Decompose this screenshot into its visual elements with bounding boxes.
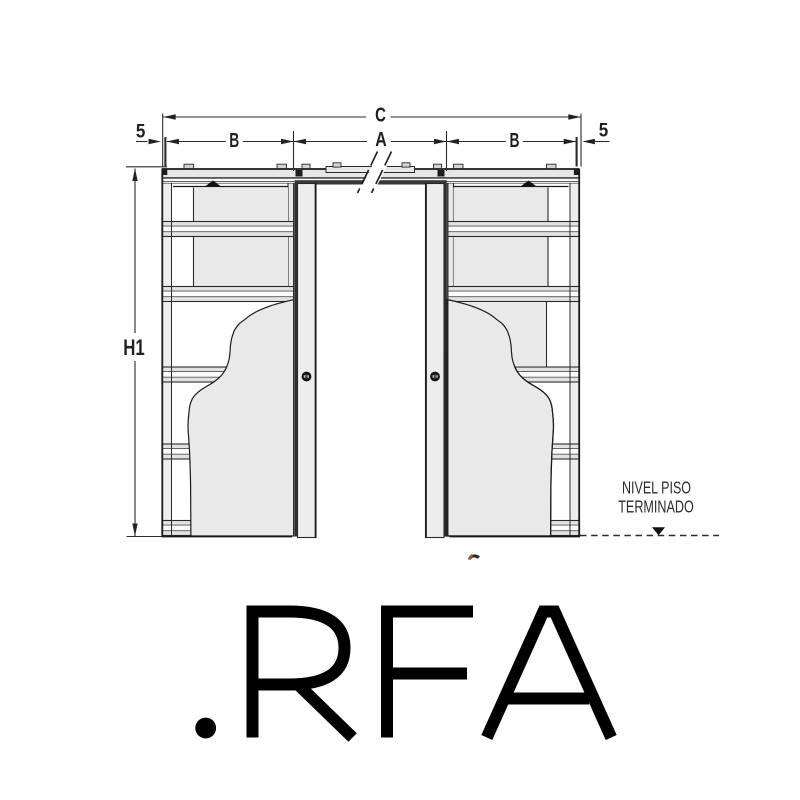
svg-text:C: C — [375, 104, 386, 127]
svg-text:5: 5 — [136, 122, 146, 143]
svg-text:A: A — [375, 128, 387, 151]
svg-text:TERMINADO: TERMINADO — [618, 497, 694, 517]
svg-text:B: B — [510, 129, 520, 152]
svg-text:NIVEL PISO: NIVEL PISO — [622, 478, 691, 498]
svg-text:H1: H1 — [123, 335, 145, 360]
svg-text:B: B — [229, 129, 239, 152]
svg-text:5: 5 — [599, 121, 609, 142]
